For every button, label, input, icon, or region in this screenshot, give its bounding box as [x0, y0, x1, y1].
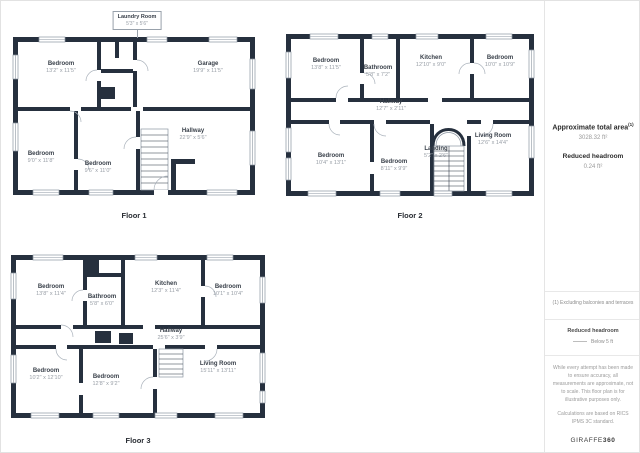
footnote-marker: (1): [628, 122, 634, 127]
room-label-bedroom: Bedroom 10'2" x 12'10": [29, 368, 62, 381]
floor-2-plan-area: Bedroom 13'8" x 11'5" Bathroom 5'8" x 7'…: [284, 13, 536, 225]
legend-item-label: Below 5 ft: [591, 339, 613, 345]
room-label-bedroom: Bedroom 12'8" x 9'2": [92, 374, 119, 387]
room-label-bedroom: Bedroom 9'0" x 11'8": [28, 151, 55, 164]
legend-section: Reduced headroom Below 5 ft: [545, 319, 640, 355]
floorplan-page: Laundry Room 5'3" x 5'6" Bedroom 13'2" x…: [0, 0, 640, 453]
room-label-kitchen: Kitchen 12'3" x 11'4": [151, 281, 181, 294]
floor-2-caption: Floor 2: [284, 211, 536, 220]
room-label-bedroom: Bedroom 10'0" x 10'9": [485, 55, 515, 68]
room-label-bathroom: Bathroom 5'8" x 6'0": [88, 294, 116, 307]
room-label-bedroom: Bedroom 9'6" x 11'0": [85, 161, 112, 174]
floor-3-plan-area: Bedroom 13'8" x 11'4" Bathroom 5'8" x 6'…: [9, 244, 267, 449]
disclaimer-text: While every attempt has been made to ens…: [552, 364, 634, 404]
room-label-hallway: Hallway 12'7" x 2'11": [376, 99, 406, 112]
room-label-hallway: Hallway 22'9" x 5'6": [179, 128, 206, 141]
below-5ft-line-icon: [573, 341, 587, 342]
room-label-garage: Garage 19'9" x 11'5": [193, 61, 223, 74]
room-name: Laundry Room: [118, 14, 157, 20]
total-area-value: 3028.32 ft²: [579, 135, 608, 141]
room-label-bedroom: Bedroom 10'4" x 13'1": [316, 153, 346, 166]
callout-connector-line: [137, 30, 138, 38]
floor-3-caption: Floor 3: [9, 436, 267, 445]
room-label-hallway: Hallway 25'6" x 3'9": [157, 328, 184, 341]
room-label-living-room: Living Room 12'6" x 14'4": [475, 133, 511, 146]
room-label-bedroom: Bedroom 13'2" x 11'5": [46, 61, 76, 74]
room-label-bathroom: Bathroom 5'8" x 7'2": [364, 65, 392, 78]
room-label-landing: Landing 5'2" x 2'6": [424, 146, 448, 159]
legend-row: Below 5 ft: [552, 339, 634, 345]
footnote-section: (1) Excluding balconies and terraces: [545, 291, 640, 319]
floor-1-plan-area: Laundry Room 5'3" x 5'6" Bedroom 13'2" x…: [11, 11, 257, 223]
reduced-headroom-value: 0.24 ft²: [584, 164, 603, 170]
room-label-bedroom: Bedroom 13'8" x 11'4": [36, 284, 66, 297]
laundry-room-callout: Laundry Room 5'3" x 5'6": [113, 11, 162, 30]
legend-title: Reduced headroom: [552, 328, 634, 334]
room-label-bedroom: Bedroom 8'11" x 9'9": [381, 159, 408, 172]
reduced-headroom-heading: Reduced headroom: [563, 153, 624, 160]
room-label-bedroom: Bedroom 13'8" x 11'5": [311, 58, 341, 71]
total-area-heading: Approximate total area(1): [552, 122, 633, 131]
room-dims: 5'3" x 5'6": [118, 21, 157, 27]
floor-3-drawing: [9, 249, 267, 429]
room-label-living-room: Living Room 15'11" x 13'11": [200, 361, 236, 374]
standards-text: Calculations are based on RICS IPMS 3C s…: [552, 410, 634, 426]
info-sidebar: Approximate total area(1) 3028.32 ft² Re…: [544, 1, 640, 453]
giraffe360-logo: GIRAFFE360: [552, 436, 634, 446]
disclaimer-section: While every attempt has been made to ens…: [545, 355, 640, 453]
total-area-panel: Approximate total area(1) 3028.32 ft² Re…: [545, 1, 640, 291]
floor-1-caption: Floor 1: [11, 211, 257, 220]
room-label-kitchen: Kitchen 12'10" x 9'0": [416, 55, 446, 68]
floor-1-drawing: [11, 31, 257, 203]
room-label-bedroom: Bedroom 10'1" x 10'4": [213, 284, 243, 297]
